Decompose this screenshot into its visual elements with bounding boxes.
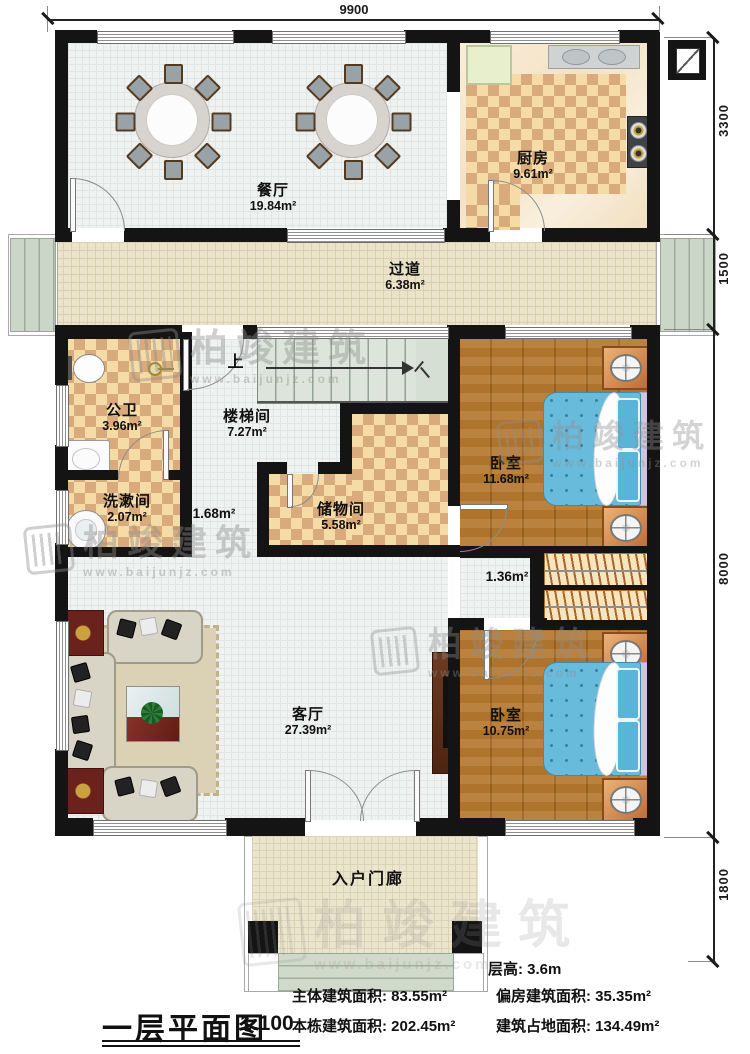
main-building-area: 主体建筑面积: 83.55m² — [292, 985, 447, 1006]
nightstand — [602, 346, 650, 390]
total-building-area: 本栋建筑面积: 202.45m² — [292, 1015, 455, 1036]
label-living: 客厅 27.39m² — [285, 706, 332, 738]
room-area: 9.61m² — [513, 167, 553, 181]
floor-corridor — [460, 558, 530, 618]
wall-segment — [542, 228, 647, 242]
wall-segment — [55, 749, 68, 820]
wall-segment — [225, 818, 305, 836]
dining-chair — [344, 64, 363, 84]
dining-chair — [164, 64, 183, 84]
sofa-pillow — [139, 779, 158, 798]
dining-table — [134, 82, 210, 158]
floor-height: 层高: 3.6m — [488, 958, 561, 979]
floor-storage — [352, 414, 448, 545]
wall-segment — [443, 228, 490, 242]
room-area: 3.96m² — [102, 419, 142, 433]
label-bedroom1: 卧室 11.68m² — [483, 455, 529, 487]
wall-segment — [633, 818, 660, 836]
toilet — [73, 354, 105, 383]
window — [56, 385, 69, 447]
label-stairs-up: 上 — [227, 354, 244, 372]
room-name: 厨房 — [513, 150, 553, 167]
label-storage: 储物间 5.58m² — [317, 501, 365, 533]
porch-step-box-left — [248, 953, 280, 992]
window — [272, 31, 406, 44]
label-bath: 公卫 3.96m² — [102, 402, 142, 434]
room-name: 餐厅 — [250, 182, 297, 199]
side-building-area: 偏房建筑面积: 35.35m² — [496, 985, 651, 1006]
dining-chair — [296, 113, 316, 132]
dining-chair — [344, 160, 363, 180]
room-area: 2.07m² — [103, 510, 151, 524]
dim-right-1500: 1500 — [716, 252, 731, 285]
dining-chair — [116, 113, 136, 132]
window — [505, 327, 632, 339]
dim-top: 9900 — [314, 2, 394, 17]
bed-pillow — [616, 720, 640, 772]
sink-basin — [598, 49, 626, 65]
wall-segment — [55, 30, 97, 43]
wall-segment — [248, 921, 278, 953]
fridge — [466, 45, 512, 85]
room-name: 洗漱间 — [103, 493, 151, 510]
dining-chair — [212, 113, 232, 132]
dining-chair — [392, 113, 412, 132]
room-name: 公卫 — [102, 402, 142, 419]
extension-line — [664, 837, 714, 838]
wall-segment — [447, 325, 505, 339]
area-value: 1.36m² — [486, 569, 529, 585]
side-table — [62, 768, 104, 814]
wall-segment — [257, 462, 287, 474]
nightstand — [602, 778, 650, 822]
sofa-pillow — [71, 715, 90, 734]
wall-segment — [530, 620, 647, 630]
wall-segment — [55, 43, 68, 230]
label-kitchen: 厨房 9.61m² — [513, 150, 553, 182]
room-area: 19.84m² — [250, 199, 297, 213]
room-name: 储物间 — [317, 501, 365, 518]
wall-segment — [448, 618, 460, 820]
window — [505, 820, 635, 836]
up-text: 上 — [227, 354, 244, 372]
wall-segment — [460, 618, 484, 630]
lamp — [610, 354, 642, 382]
stove-burner — [630, 122, 647, 139]
dining-table — [314, 82, 390, 158]
title-underline — [102, 1045, 300, 1047]
extension-line — [664, 37, 714, 38]
label-dining: 餐厅 19.84m² — [250, 182, 297, 214]
wall-segment — [55, 818, 93, 836]
stove-burner — [630, 145, 647, 162]
wall-segment — [55, 339, 68, 385]
porch-step-box-right — [452, 953, 484, 992]
drawing-scale: 1:100 — [240, 1012, 294, 1036]
wall-segment — [404, 30, 490, 43]
wall-segment — [416, 818, 460, 836]
footprint-area: 建筑占地面积: 134.49m² — [496, 1015, 659, 1036]
room-name: 楼梯间 — [223, 408, 271, 425]
sofa-pillow — [73, 689, 93, 709]
window — [490, 31, 620, 44]
lamp — [610, 514, 642, 542]
closet-bottom — [544, 590, 649, 621]
dim-line-right — [713, 38, 715, 962]
wash-basin — [66, 510, 106, 550]
floor-porch — [252, 836, 478, 953]
room-name: 入户门廊 — [332, 871, 404, 889]
label-stair: 楼梯间 7.27m² — [223, 408, 271, 440]
stair-edge — [257, 401, 448, 403]
extension-line — [664, 234, 714, 235]
dining-chair — [164, 160, 183, 180]
wall-segment — [63, 470, 118, 480]
bed-pillow — [616, 668, 640, 720]
room-name: 卧室 — [483, 455, 529, 472]
dim-right-3300: 3300 — [716, 104, 731, 137]
lamp — [610, 786, 642, 814]
wall-segment — [448, 339, 460, 506]
staircase — [257, 335, 450, 404]
steps-left — [10, 238, 56, 332]
extension-line — [664, 329, 714, 330]
wall-segment — [124, 228, 287, 242]
dim-right-8000: 8000 — [716, 552, 731, 585]
floor-plan: 餐厅 19.84m² 厨房 9.61m² 过道 6.38m² 公卫 3.96m²… — [0, 0, 750, 1054]
stair-direction-line — [266, 367, 402, 369]
room-area: 5.58m² — [317, 518, 365, 532]
closet-top — [544, 553, 649, 586]
window — [56, 621, 69, 751]
dining-table-center — [326, 94, 378, 146]
room-name: 客厅 — [285, 706, 332, 723]
window — [257, 327, 449, 339]
wall-segment — [63, 547, 192, 557]
wall-segment — [55, 559, 68, 621]
room-area: 27.39m² — [285, 723, 332, 737]
window — [97, 31, 234, 44]
window — [287, 229, 445, 243]
title-underline — [102, 1040, 300, 1042]
dim-right-1800: 1800 — [716, 868, 731, 901]
kitchen-sink — [548, 45, 640, 69]
nightstand — [602, 506, 650, 550]
wall-segment — [243, 325, 257, 339]
wall-segment — [452, 921, 482, 953]
dining-table-center — [146, 94, 198, 146]
wall-segment — [257, 545, 460, 557]
flue — [676, 48, 700, 74]
sink-basin — [562, 49, 590, 65]
wall-segment — [544, 585, 647, 590]
room-area: 10.75m² — [483, 724, 530, 738]
sofa-pillow — [139, 617, 159, 637]
room-name: 过道 — [385, 261, 425, 278]
bed-pillow — [616, 450, 640, 502]
wall-segment — [55, 325, 182, 339]
wall-segment — [340, 402, 450, 414]
room-area: 7.27m² — [223, 425, 271, 439]
room-name: 卧室 — [483, 707, 530, 724]
wall-segment — [447, 43, 460, 92]
window — [93, 820, 227, 836]
wall-segment — [618, 30, 660, 43]
room-area: 11.68m² — [483, 472, 529, 486]
wall-segment — [232, 30, 272, 43]
label-porch: 入户门廊 — [332, 871, 404, 889]
area-value: 1.68m² — [193, 506, 236, 522]
room-area: 6.38m² — [385, 278, 425, 292]
window — [56, 490, 69, 545]
wall-segment — [460, 818, 505, 836]
floor-hallway — [55, 242, 660, 325]
bed-pillow — [616, 398, 640, 450]
wall-segment — [55, 445, 68, 490]
wall-segment — [530, 546, 647, 553]
label-hallway: 过道 6.38m² — [385, 261, 425, 293]
label-bedroom2: 卧室 10.75m² — [483, 707, 530, 739]
dim-line-top — [48, 19, 660, 21]
label-corridor-area-2: 1.36m² — [486, 569, 529, 585]
label-corridor-area-1: 1.68m² — [193, 506, 236, 522]
plant — [141, 702, 163, 724]
stair-direction-arrow — [402, 361, 414, 375]
wall-segment — [447, 200, 460, 230]
shower-hose — [158, 368, 174, 370]
wall-segment — [647, 325, 660, 820]
steps-right — [660, 238, 714, 332]
wall-segment — [318, 462, 352, 474]
label-wash: 洗漱间 2.07m² — [103, 493, 151, 525]
wall-segment — [647, 43, 660, 242]
